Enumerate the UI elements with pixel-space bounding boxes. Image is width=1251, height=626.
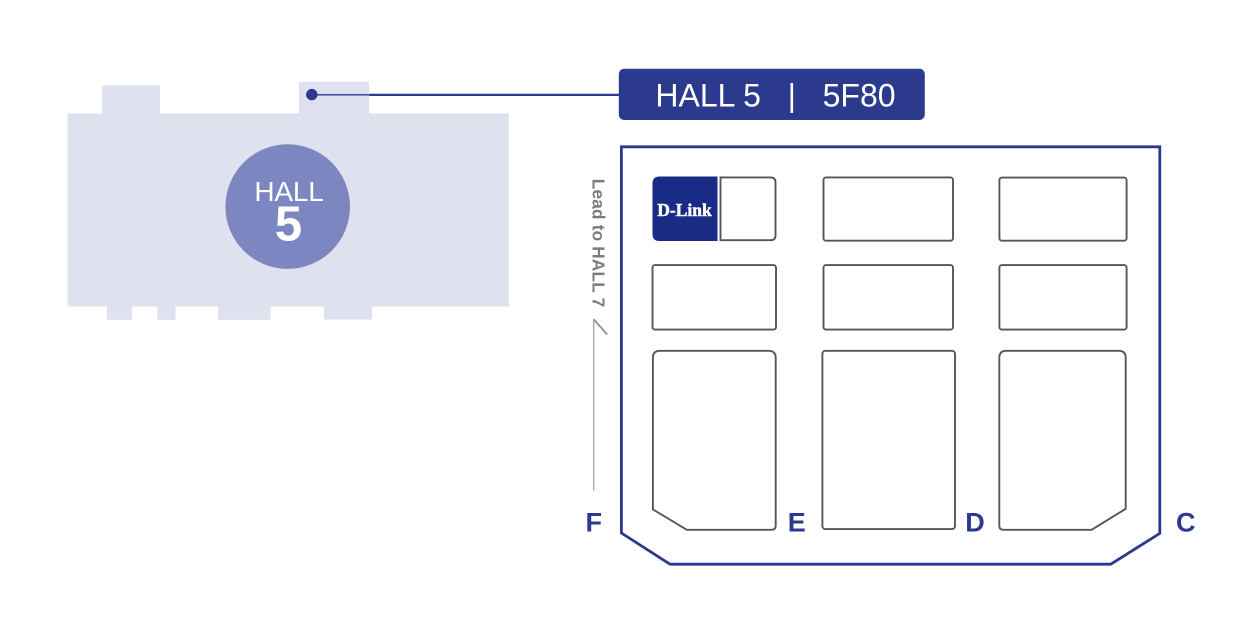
svg-text:F: F bbox=[586, 507, 603, 537]
svg-text:5: 5 bbox=[275, 198, 302, 252]
svg-text:HALL 5 | 5F80: HALL 5 | 5F80 bbox=[655, 78, 895, 114]
svg-text:E: E bbox=[788, 507, 806, 537]
svg-text:C: C bbox=[1176, 507, 1196, 537]
svg-text:D: D bbox=[965, 507, 985, 537]
svg-text:Lead to HALL 7: Lead to HALL 7 bbox=[588, 179, 608, 308]
svg-text:D-Link: D-Link bbox=[657, 200, 712, 220]
